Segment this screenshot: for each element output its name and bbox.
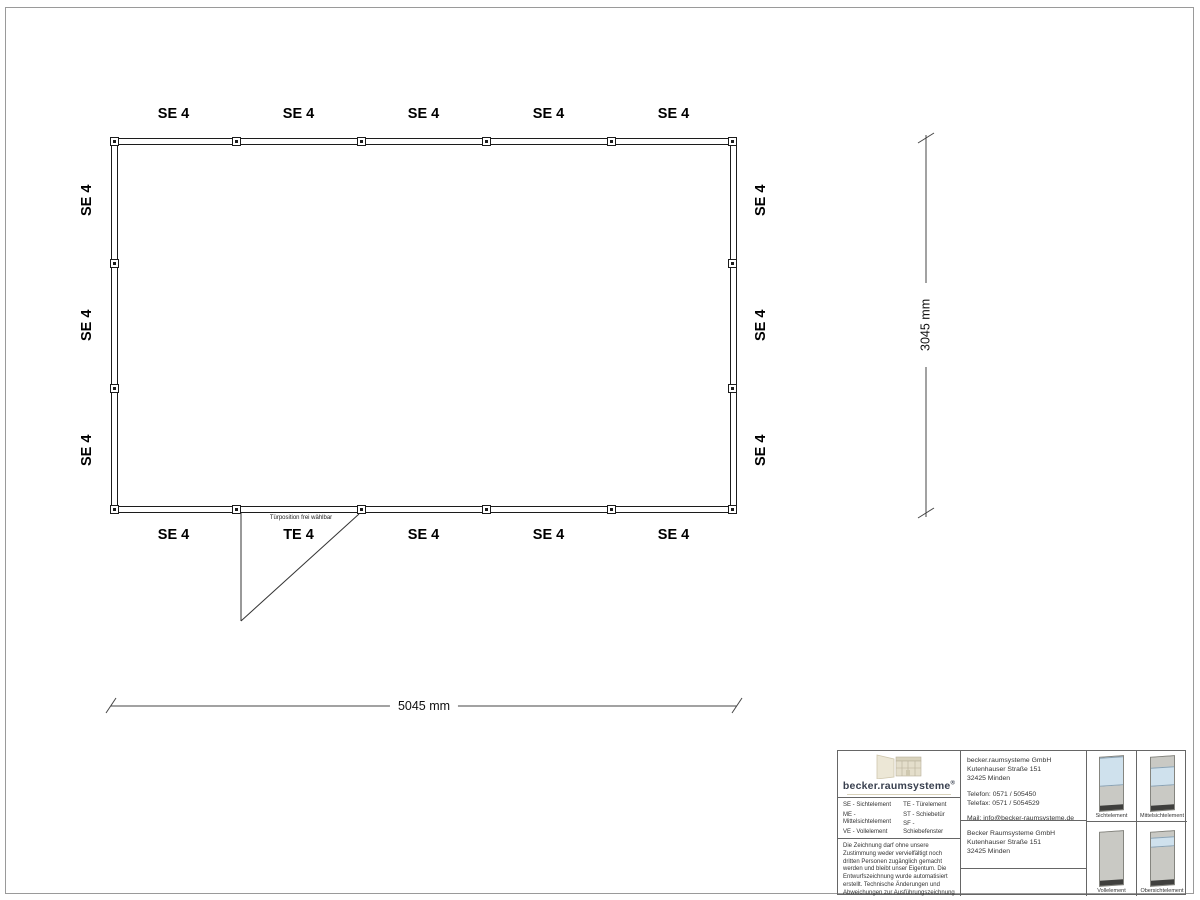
manufacturer-city: 32425 Minden — [967, 847, 1080, 856]
logo-underline — [847, 794, 951, 795]
wall-post — [607, 137, 616, 146]
wall-segment-label: SE 4 — [611, 527, 736, 547]
element-label: Obersichtelement — [1140, 888, 1183, 894]
legend-column-1: SE - Sichtelement ME - Mittelsichtelemen… — [843, 802, 897, 834]
title-block: becker.raumsysteme® SE - Sichtelement ME… — [837, 750, 1186, 895]
element-preview-vollelement: Vollelement — [1087, 822, 1137, 896]
sichtelement-panel-icon — [1099, 755, 1124, 812]
wall-post — [232, 137, 241, 146]
wall-segment-label: SE 4 — [78, 388, 96, 513]
element-label: Mittelsichtelement — [1140, 813, 1184, 819]
wall-segment-label: SE 4 — [752, 263, 770, 388]
wall-post — [728, 259, 737, 268]
vollelement-panel-icon — [1099, 830, 1124, 887]
contact-company: becker.raumsysteme GmbH — [967, 756, 1080, 765]
logo-cell: becker.raumsysteme® — [838, 751, 961, 798]
contact-street: Kutenhauser Straße 151 — [967, 765, 1080, 774]
mittelsichtelement-panel-icon — [1150, 755, 1175, 812]
wall-segment-label: SE 4 — [78, 263, 96, 388]
legend-entry: ME - Mittelsichtelement — [843, 812, 897, 827]
wall-segment-label: SE 4 — [361, 527, 486, 547]
contact-phone: Telefon: 0571 / 505450 — [967, 790, 1080, 799]
contact-info: becker.raumsysteme GmbH Kutenhauser Stra… — [961, 751, 1087, 821]
wall-post — [232, 505, 241, 514]
wall-segment-label: SE 4 — [752, 138, 770, 263]
becker-raumsysteme-logo-icon — [875, 753, 923, 779]
wall-segment-label: SE 4 — [236, 106, 361, 126]
legend-entry: ST - Schiebetür — [903, 812, 955, 820]
element-label: Vollelement — [1097, 888, 1125, 894]
door-element-label: TE 4 — [236, 527, 361, 547]
wall-post — [110, 259, 119, 268]
wall-post — [482, 137, 491, 146]
wall-segment-label: SE 4 — [611, 106, 736, 126]
wall-post — [482, 505, 491, 514]
element-preview-sichtelement: Sichtelement — [1087, 751, 1137, 822]
legend-column-2: TE - Türelement ST - Schiebetür SF - Sch… — [903, 802, 955, 834]
contact-fax: Telefax: 0571 / 5054529 — [967, 799, 1080, 808]
wall-post — [728, 505, 737, 514]
wall-post — [728, 384, 737, 393]
wall-post — [357, 505, 366, 514]
legend-entry: SF - Schiebefenster — [903, 821, 955, 836]
element-preview-mittelsichtelement: Mittelsichtelement — [1137, 751, 1187, 822]
wall-post — [110, 505, 119, 514]
wall-segment-label: SE 4 — [111, 527, 236, 547]
wall-segment-label: SE 4 — [111, 106, 236, 126]
legend-entry: SE - Sichtelement — [843, 802, 897, 810]
manufacturer-company: Becker Raumsysteme GmbH — [967, 829, 1080, 838]
copyright-disclaimer: Die Zeichnung darf ohne unsere Zustimmun… — [838, 839, 961, 896]
wall-segment-label: SE 4 — [486, 106, 611, 126]
manufacturer-street: Kutenhauser Straße 151 — [967, 838, 1080, 847]
element-preview-obersichtelement: Obersichtelement — [1137, 822, 1187, 896]
legend-entry: VE - Vollelement — [843, 829, 897, 837]
wall-segment-label: SE 4 — [361, 106, 486, 126]
manufacturer-info: Becker Raumsysteme GmbH Kutenhauser Stra… — [961, 821, 1087, 869]
wall-post — [728, 137, 737, 146]
element-label: Sichtelement — [1096, 813, 1128, 819]
empty-cell — [961, 869, 1087, 896]
logo-wordmark: becker.raumsysteme® — [843, 780, 955, 792]
wall-post — [110, 137, 119, 146]
drawing-sheet: SE 4 SE 4 SE 4 SE 4 SE 4 SE 4 TE 4 SE 4 … — [0, 0, 1200, 900]
legend-entry: TE - Türelement — [903, 802, 955, 810]
wall-segment-label: SE 4 — [78, 138, 96, 263]
height-dimension-label: 3045 mm — [917, 283, 934, 367]
wall-post — [607, 505, 616, 514]
contact-city: 32425 Minden — [967, 774, 1080, 783]
wall-post — [110, 384, 119, 393]
wall-segment-label: SE 4 — [752, 388, 770, 513]
width-dimension-label: 5045 mm — [390, 699, 458, 713]
obersichtelement-panel-icon — [1150, 830, 1175, 887]
wall-segment-label: SE 4 — [486, 527, 611, 547]
room-wall-inner-line — [117, 144, 731, 507]
door-position-note: Türposition frei wählbar — [243, 515, 359, 521]
wall-post — [357, 137, 366, 146]
contact-mail: Mail: info@becker-raumsysteme.de — [967, 814, 1080, 821]
element-legend: SE - Sichtelement ME - Mittelsichtelemen… — [838, 798, 961, 839]
